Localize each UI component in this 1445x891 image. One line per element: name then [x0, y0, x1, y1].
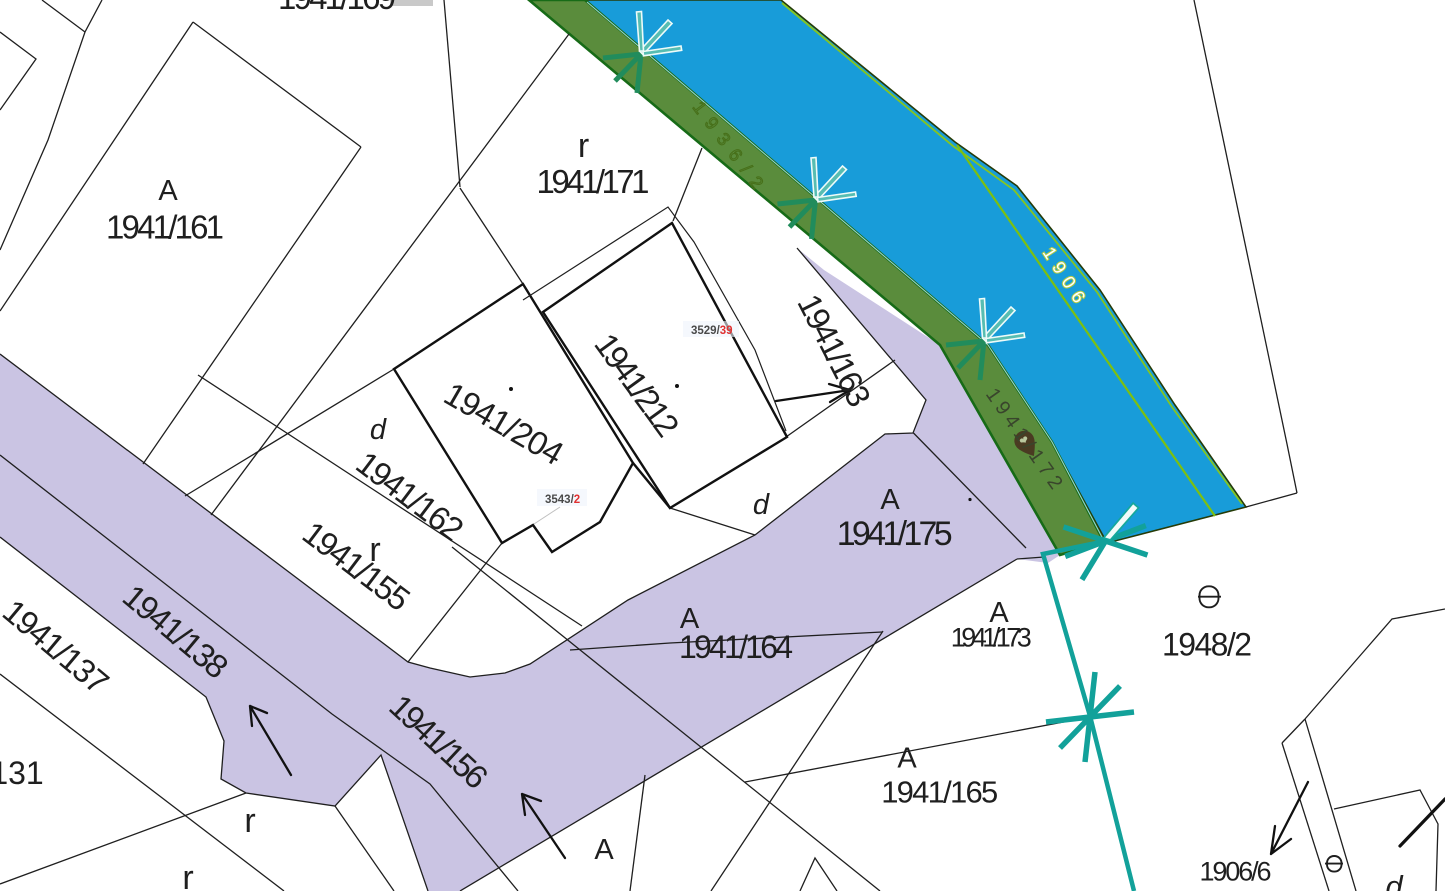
svg-text:r: r — [182, 859, 193, 891]
svg-text:r: r — [578, 127, 589, 165]
svg-text:3543/2: 3543/2 — [545, 494, 580, 506]
svg-text:3529/39: 3529/39 — [691, 325, 733, 337]
svg-text:A: A — [158, 175, 178, 207]
svg-text:131: 131 — [0, 755, 44, 791]
svg-text:A: A — [880, 484, 900, 516]
svg-text:1941/161: 1941/161 — [106, 209, 224, 246]
svg-text:1941/175: 1941/175 — [837, 515, 953, 553]
svg-text:d: d — [1385, 869, 1404, 891]
svg-text:A: A — [594, 834, 614, 866]
svg-text:A: A — [989, 597, 1009, 629]
svg-text:1941/171: 1941/171 — [537, 163, 650, 200]
svg-text:r: r — [369, 531, 380, 569]
svg-text:r: r — [244, 802, 255, 840]
svg-text:1906/6: 1906/6 — [1200, 857, 1272, 887]
svg-text:1941/165: 1941/165 — [881, 775, 998, 810]
svg-text:1941/169: 1941/169 — [278, 0, 396, 16]
svg-text:A: A — [680, 603, 700, 635]
svg-text:1948/2: 1948/2 — [1162, 626, 1252, 662]
svg-text:d: d — [753, 489, 770, 521]
svg-text:A: A — [897, 743, 917, 775]
svg-text:d: d — [370, 414, 387, 446]
